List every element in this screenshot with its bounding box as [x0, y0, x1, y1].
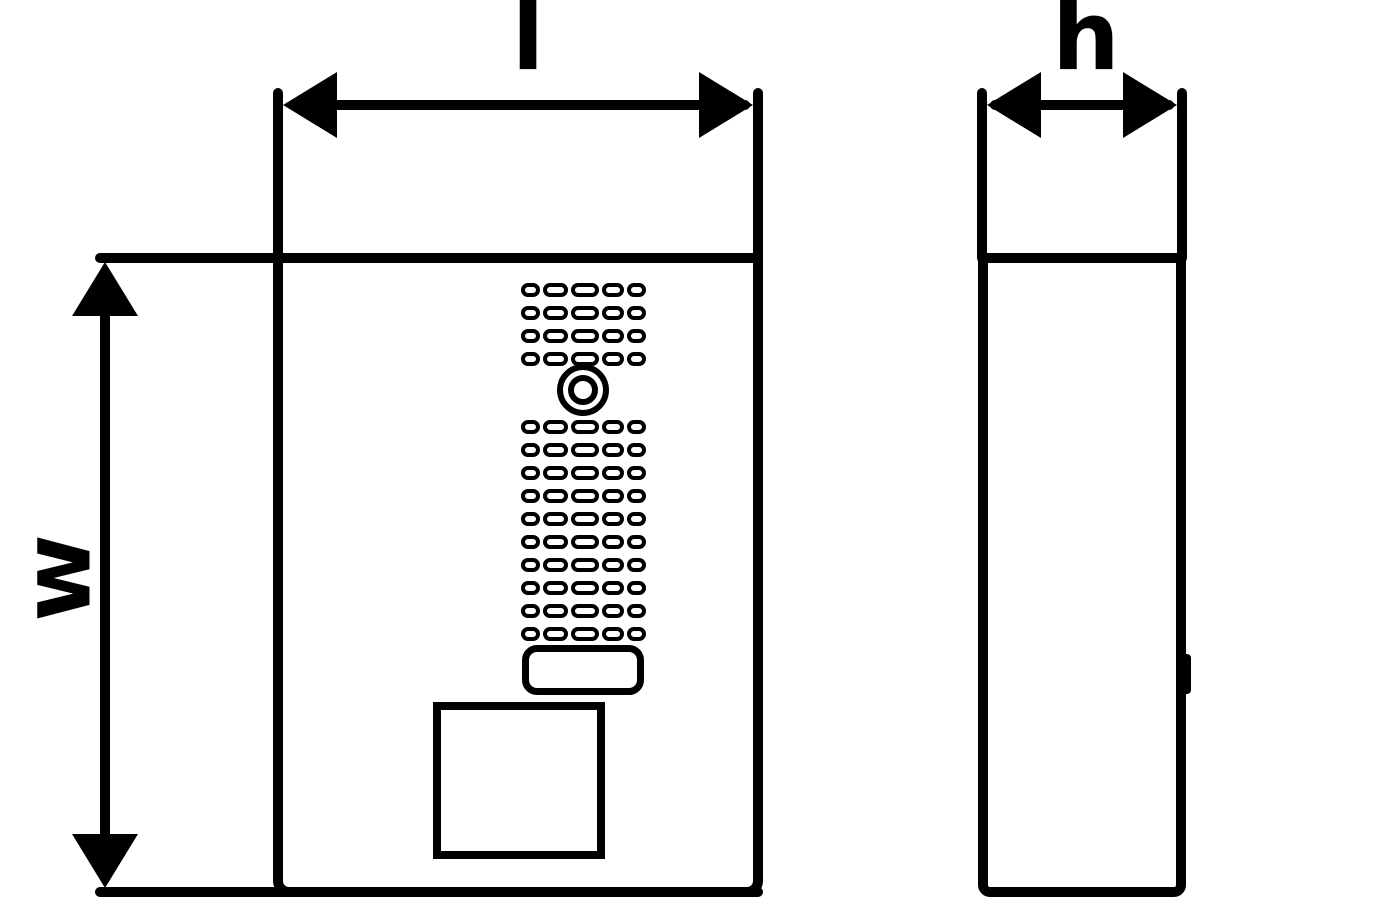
- grille-slot: [543, 306, 568, 320]
- grille-slot: [521, 489, 540, 503]
- grille-slot: [602, 329, 624, 343]
- depth-dimension-label: h: [1036, 0, 1136, 85]
- grille-slot: [602, 558, 624, 572]
- grille-slot: [543, 329, 568, 343]
- grille-slot: [571, 581, 599, 595]
- grille-slot: [602, 604, 624, 618]
- grille-slot: [627, 512, 646, 526]
- grille-slot: [521, 535, 540, 549]
- side-view-outline: [978, 253, 1186, 897]
- grille-slot: [543, 627, 568, 641]
- grille-slot: [521, 512, 540, 526]
- grille-slot: [571, 558, 599, 572]
- arrow-left-icon: [987, 72, 1041, 138]
- grille-slot: [521, 420, 540, 434]
- grille-slot: [627, 604, 646, 618]
- grille-slot: [571, 535, 599, 549]
- grille-slot: [571, 283, 599, 297]
- grille-slot: [521, 443, 540, 457]
- grille-slot: [571, 604, 599, 618]
- grille-slot: [521, 558, 540, 572]
- camera-lens-inner-ring: [568, 375, 598, 405]
- grille-slot: [571, 420, 599, 434]
- width-dimension-label: w: [8, 506, 108, 651]
- speaker-grille-row: [521, 306, 646, 320]
- grille-slot: [602, 489, 624, 503]
- grille-slot: [521, 627, 540, 641]
- grille-slot: [521, 581, 540, 595]
- grille-slot: [627, 443, 646, 457]
- speaker-grille-row: [521, 558, 646, 572]
- length-dimension-line: [290, 100, 750, 110]
- speaker-grille-row: [521, 581, 646, 595]
- grille-slot: [627, 489, 646, 503]
- grille-slot: [571, 352, 599, 366]
- grille-slot: [521, 329, 540, 343]
- grille-slot: [627, 283, 646, 297]
- arrow-left-icon: [283, 72, 337, 138]
- grille-slot: [543, 352, 568, 366]
- grille-slot: [627, 466, 646, 480]
- speaker-grille-row: [521, 512, 646, 526]
- grille-slot: [521, 604, 540, 618]
- speaker-grille-row: [521, 489, 646, 503]
- grille-slot: [627, 581, 646, 595]
- speaker-grille-row: [521, 535, 646, 549]
- grille-slot: [602, 466, 624, 480]
- dimension-drawing-canvas: l h w: [0, 0, 1400, 900]
- grille-slot: [521, 306, 540, 320]
- depth-extension-line-right: [1177, 88, 1187, 263]
- call-button-outline: [522, 645, 644, 695]
- grille-slot: [543, 466, 568, 480]
- grille-slot: [571, 489, 599, 503]
- grille-slot: [627, 558, 646, 572]
- grille-slot: [627, 306, 646, 320]
- grille-slot: [521, 466, 540, 480]
- grille-slot: [627, 420, 646, 434]
- arrow-down-icon: [72, 834, 138, 888]
- length-dimension-label: l: [478, 0, 578, 85]
- grille-slot: [543, 558, 568, 572]
- grille-slot: [543, 581, 568, 595]
- grille-slot: [627, 627, 646, 641]
- grille-slot: [627, 329, 646, 343]
- grille-slot: [543, 512, 568, 526]
- speaker-grille-row: [521, 604, 646, 618]
- grille-slot: [571, 443, 599, 457]
- grille-slot: [602, 443, 624, 457]
- grille-slot: [543, 283, 568, 297]
- arrow-up-icon: [72, 262, 138, 316]
- grille-slot: [602, 352, 624, 366]
- grille-slot: [571, 306, 599, 320]
- grille-slot: [543, 443, 568, 457]
- grille-slot: [602, 581, 624, 595]
- depth-extension-line-left: [977, 88, 987, 263]
- speaker-grille-row: [521, 329, 646, 343]
- length-extension-line-left: [273, 88, 283, 263]
- speaker-grille-row: [521, 420, 646, 434]
- grille-slot: [602, 306, 624, 320]
- grille-slot: [543, 535, 568, 549]
- speaker-grille-row: [521, 352, 646, 366]
- speaker-grille-row: [521, 443, 646, 457]
- speaker-grille-row: [521, 627, 646, 641]
- grille-slot: [602, 512, 624, 526]
- speaker-grille-row: [521, 466, 646, 480]
- grille-slot: [571, 512, 599, 526]
- grille-slot: [543, 489, 568, 503]
- grille-slot: [571, 466, 599, 480]
- grille-slot: [627, 535, 646, 549]
- speaker-grille-row: [521, 283, 646, 297]
- grille-slot: [543, 420, 568, 434]
- arrow-right-icon: [699, 72, 753, 138]
- grille-slot: [602, 535, 624, 549]
- grille-slot: [602, 627, 624, 641]
- grille-slot: [543, 604, 568, 618]
- grille-slot: [521, 283, 540, 297]
- name-plate-outline: [433, 702, 605, 859]
- length-extension-line-right: [753, 88, 763, 263]
- grille-slot: [571, 329, 599, 343]
- side-button-profile: [1183, 654, 1191, 694]
- grille-slot: [602, 283, 624, 297]
- width-dimension-line: [100, 270, 110, 880]
- grille-slot: [627, 352, 646, 366]
- grille-slot: [571, 627, 599, 641]
- grille-slot: [521, 352, 540, 366]
- grille-slot: [602, 420, 624, 434]
- arrow-right-icon: [1123, 72, 1177, 138]
